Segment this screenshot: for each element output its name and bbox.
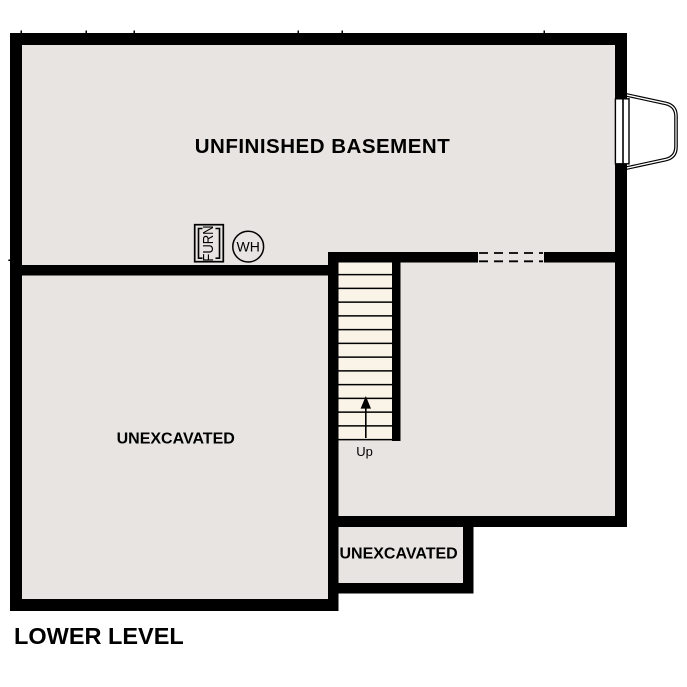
svg-text:UNEXCAVATED: UNEXCAVATED bbox=[339, 546, 457, 563]
svg-text:FURN: FURN bbox=[200, 225, 217, 261]
svg-text:UNFINISHED BASEMENT: UNFINISHED BASEMENT bbox=[195, 135, 451, 158]
svg-text:WH: WH bbox=[237, 239, 260, 255]
svg-text:Up: Up bbox=[356, 444, 373, 459]
svg-text:UNEXCAVATED: UNEXCAVATED bbox=[117, 431, 235, 448]
svg-text:LOWER LEVEL: LOWER LEVEL bbox=[14, 623, 184, 649]
